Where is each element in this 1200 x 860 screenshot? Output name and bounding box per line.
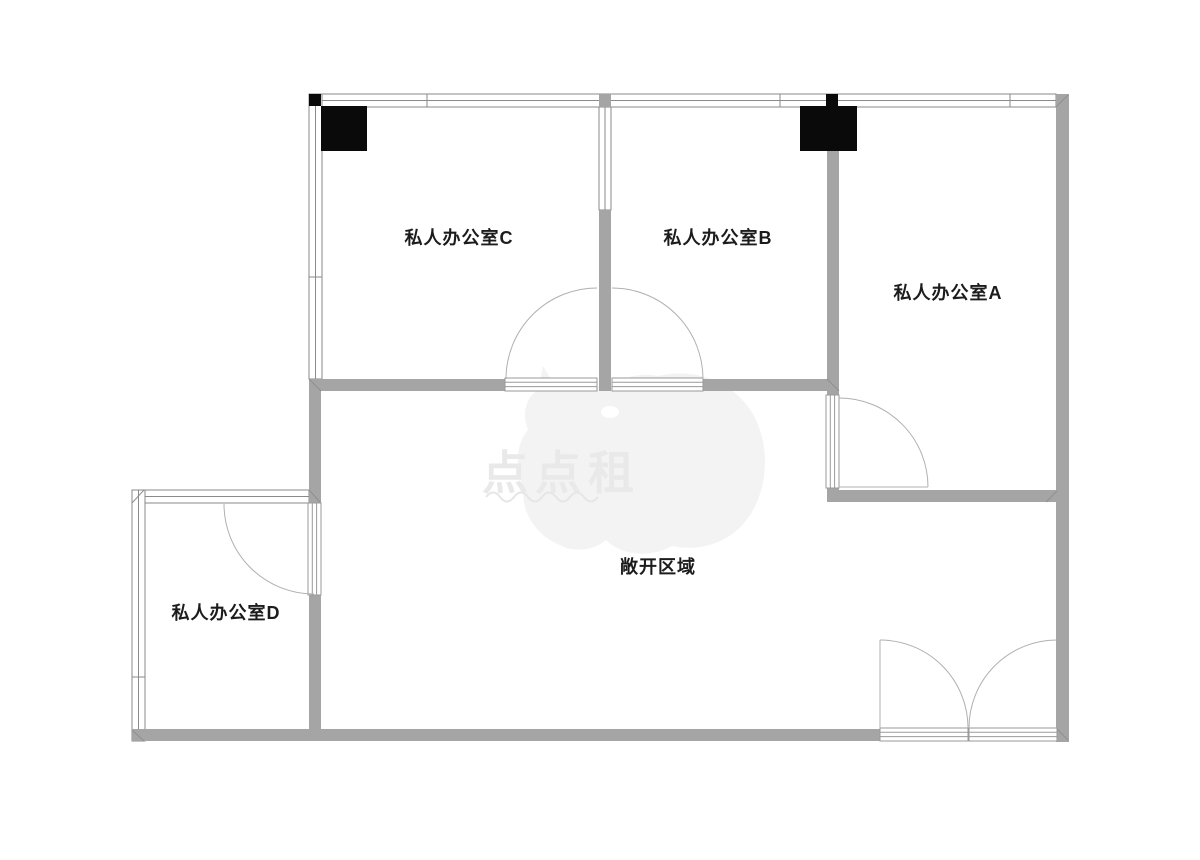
door-leaf-office-b	[612, 378, 703, 391]
wall-mid-vertical-upper	[309, 379, 321, 503]
watermark-rhino-eye	[601, 406, 619, 418]
room-label-office-d: 私人办公室D	[172, 599, 281, 625]
column-office-c	[321, 106, 367, 151]
wall-office-a-door-joint	[827, 488, 839, 502]
door-leaf-entry-left	[880, 728, 968, 741]
door-swing-office-b	[612, 288, 703, 379]
room-label-open-area: 敞开区域	[620, 553, 696, 579]
column-office-b	[800, 106, 857, 151]
door-leaf-office-a	[826, 395, 839, 488]
wall-office-a-left	[827, 151, 839, 395]
door-leaf-entry-right	[969, 728, 1057, 741]
wall-office-a-bottom	[839, 490, 1056, 502]
wall-divider-right	[703, 379, 839, 391]
wall-mid-vertical-lower	[309, 595, 321, 741]
wall-central-solid	[599, 210, 611, 391]
watermark: 点点租	[482, 366, 765, 554]
room-label-office-c: 私人办公室C	[405, 224, 514, 250]
door-swing-office-d	[224, 504, 314, 594]
floor-plan-drawing: 点点租	[0, 0, 1200, 860]
floor-plan: 点点租	[0, 0, 1200, 860]
room-label-office-a: 私人办公室A	[894, 279, 1003, 305]
door-swing-office-c	[506, 288, 597, 379]
door-swing-entry-left	[880, 640, 968, 728]
door-leaf-office-c	[505, 378, 597, 391]
wall-right-outer	[1056, 94, 1069, 742]
wall-divider-left	[309, 379, 505, 391]
door-swing-entry-right	[969, 640, 1057, 728]
door-swing-office-a	[839, 398, 928, 487]
column-corner-block	[309, 94, 321, 106]
door-leaf-office-d	[308, 503, 321, 595]
wall-bottom	[132, 729, 880, 741]
room-label-office-b: 私人办公室B	[664, 224, 773, 250]
watermark-text: 点点租	[482, 447, 641, 499]
wall-central-mullion	[599, 94, 611, 107]
column-office-b-stub	[826, 94, 838, 106]
